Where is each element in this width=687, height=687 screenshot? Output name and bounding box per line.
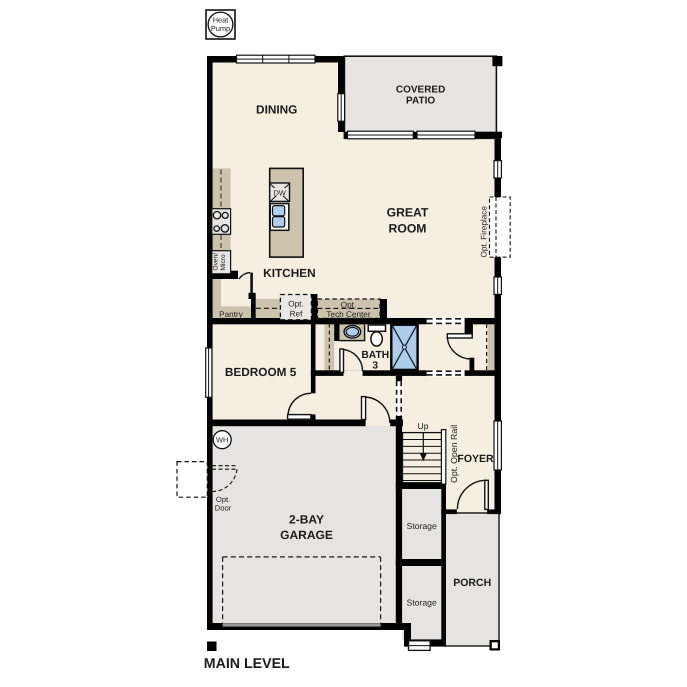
svg-text:Opt.: Opt. (288, 299, 303, 308)
svg-text:Up: Up (418, 421, 429, 431)
svg-text:Pump: Pump (211, 24, 230, 33)
svg-text:2-BAY: 2-BAY (289, 512, 324, 526)
svg-text:PORCH: PORCH (453, 577, 491, 589)
svg-text:COVERED: COVERED (396, 85, 445, 96)
svg-text:DW: DW (273, 188, 286, 197)
svg-text:Tech Center: Tech Center (326, 310, 370, 319)
svg-text:PATIO: PATIO (406, 95, 435, 106)
svg-text:KITCHEN: KITCHEN (263, 266, 315, 280)
svg-text:FOYER: FOYER (457, 453, 494, 465)
svg-text:DINING: DINING (256, 103, 297, 117)
svg-text:Pantry: Pantry (219, 310, 244, 319)
svg-text:GREAT: GREAT (387, 206, 429, 220)
svg-text:Oven/: Oven/ (213, 253, 220, 271)
svg-text:GARAGE: GARAGE (280, 528, 333, 542)
svg-text:Opt.: Opt. (216, 495, 230, 504)
svg-text:Storage: Storage (407, 598, 437, 608)
svg-text:3: 3 (372, 361, 378, 372)
svg-text:Opt. Fireplace: Opt. Fireplace (480, 206, 489, 258)
svg-text:BEDROOM 5: BEDROOM 5 (225, 365, 297, 379)
svg-text:Storage: Storage (407, 521, 437, 531)
svg-text:ROOM: ROOM (389, 222, 427, 236)
svg-text:Door: Door (215, 504, 232, 513)
svg-text:MAIN LEVEL: MAIN LEVEL (204, 656, 290, 672)
svg-text:WH: WH (216, 436, 228, 445)
svg-text:Opt. Open Rail: Opt. Open Rail (449, 425, 459, 483)
svg-text:Micro: Micro (220, 254, 227, 270)
svg-text:Ref: Ref (290, 309, 303, 318)
svg-text:BATH: BATH (361, 350, 389, 361)
svg-text:Opt.: Opt. (341, 300, 356, 309)
